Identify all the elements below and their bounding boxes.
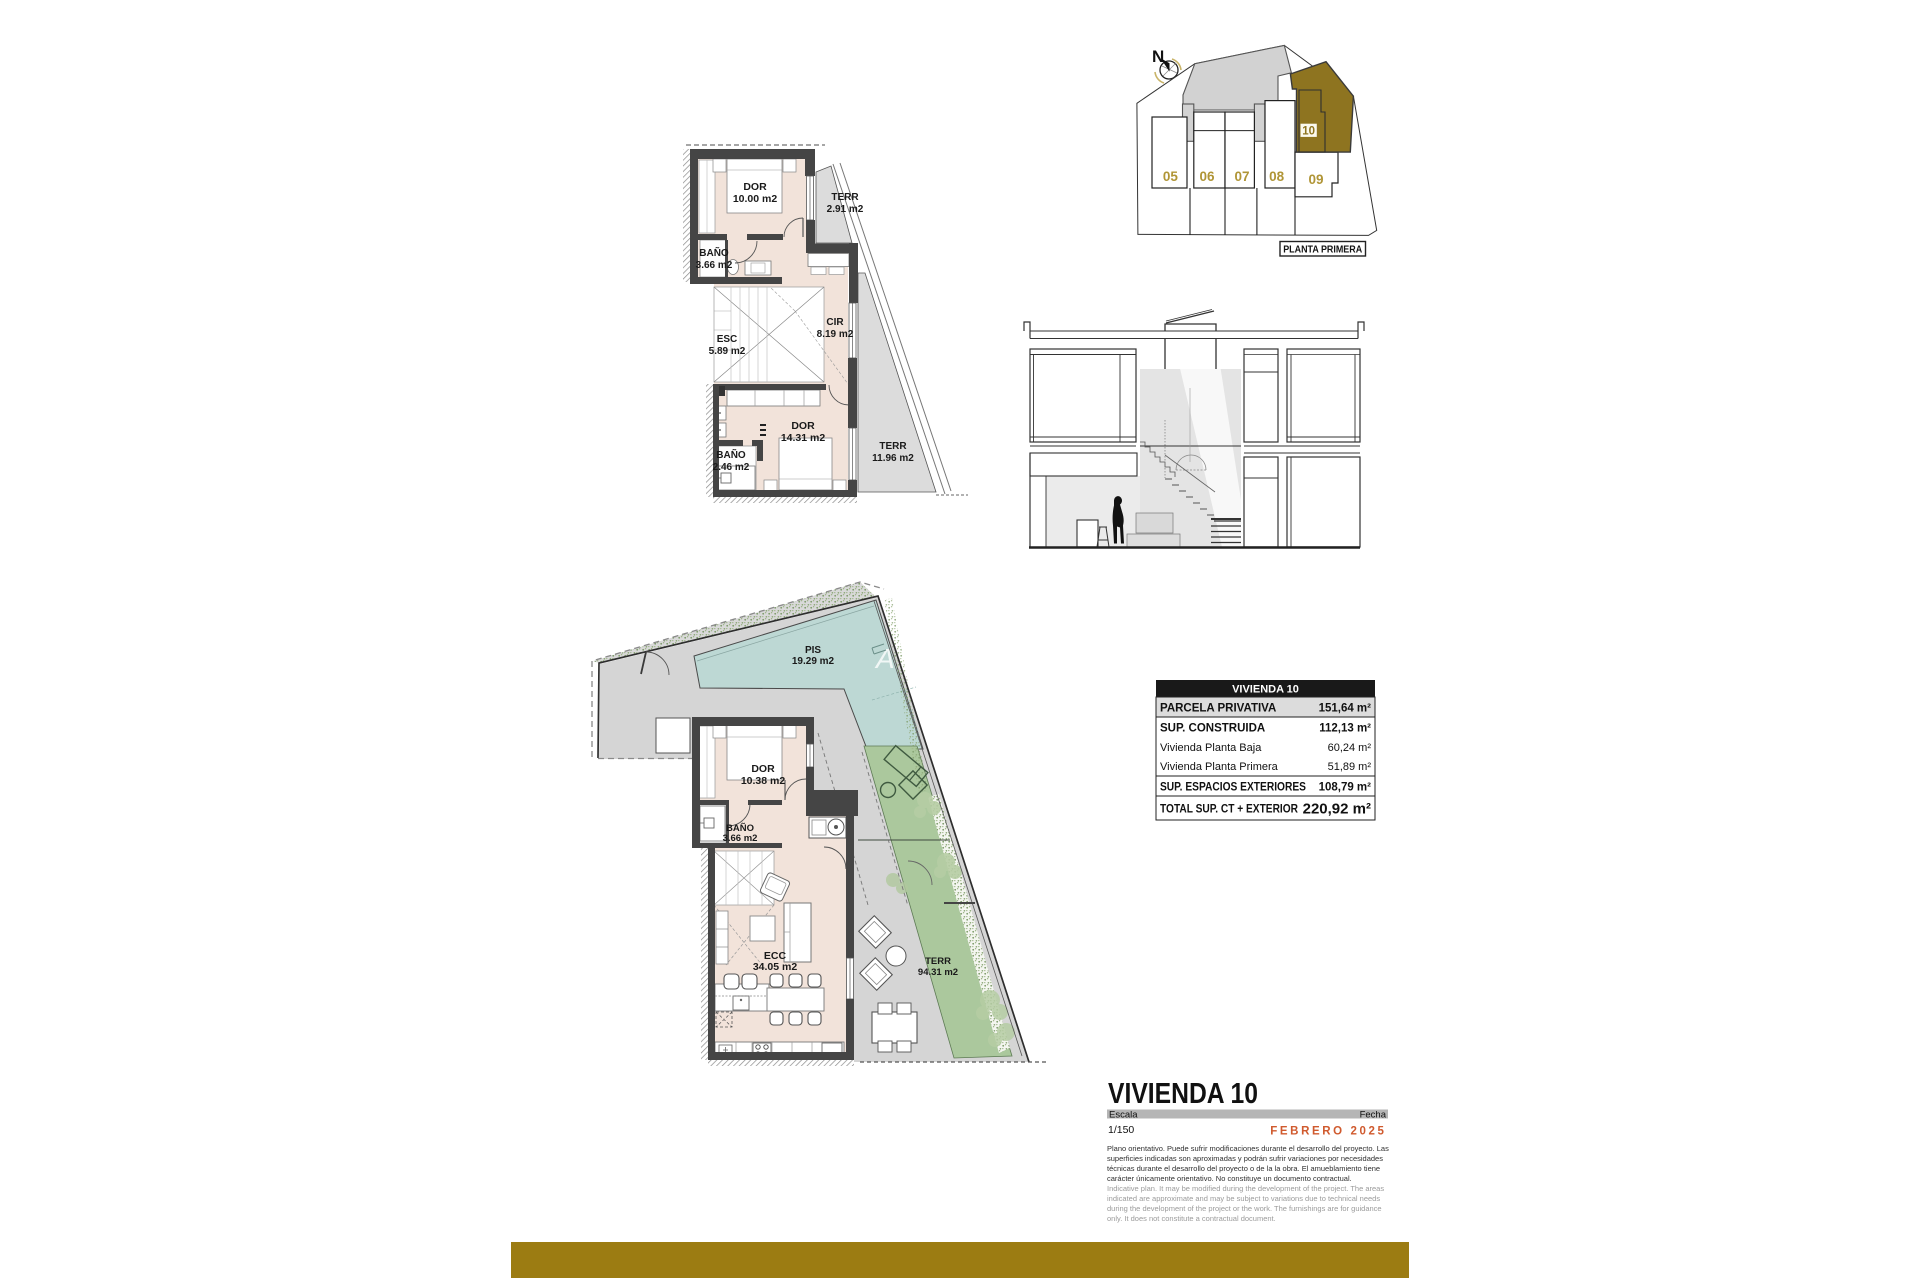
svg-text:1/150: 1/150	[1108, 1124, 1134, 1136]
svg-text:Escala: Escala	[1109, 1110, 1138, 1121]
svg-text:34.05 m2: 34.05 m2	[753, 961, 798, 973]
svg-text:151,64 m²: 151,64 m²	[1319, 703, 1372, 715]
svg-text:TOTAL SUP. CT + EXTERIOR: TOTAL SUP. CT + EXTERIOR	[1160, 802, 1298, 816]
svg-text:220,92 m²: 220,92 m²	[1303, 801, 1371, 818]
svg-text:TERR: TERR	[831, 192, 859, 203]
svg-text:CIR: CIR	[826, 317, 844, 328]
svg-text:FEBRERO 2025: FEBRERO 2025	[1270, 1126, 1386, 1138]
svg-text:PARCELA PRIVATIVA: PARCELA PRIVATIVA	[1160, 703, 1276, 715]
svg-text:07: 07	[1234, 169, 1249, 184]
svg-text:2.46 m2: 2.46 m2	[713, 462, 750, 473]
svg-text:A: A	[874, 643, 895, 674]
svg-text:TERR: TERR	[879, 441, 907, 452]
svg-text:5.89 m2: 5.89 m2	[709, 346, 746, 357]
svg-text:11.96 m2: 11.96 m2	[872, 453, 914, 464]
svg-text:94.31 m2: 94.31 m2	[918, 967, 958, 978]
svg-text:3.66 m2: 3.66 m2	[723, 833, 758, 844]
svg-text:10: 10	[1302, 126, 1315, 138]
svg-text:19.29 m2: 19.29 m2	[792, 656, 835, 667]
svg-text:SUP. CONSTRUIDA: SUP. CONSTRUIDA	[1160, 723, 1265, 735]
svg-text:indicated are approximate and: indicated are approximate and may be sub…	[1107, 1194, 1380, 1203]
svg-text:Vivienda Planta Baja: Vivienda Planta Baja	[1160, 742, 1262, 754]
svg-text:8.19 m2: 8.19 m2	[817, 329, 854, 340]
svg-text:14.31 m2: 14.31 m2	[781, 432, 826, 444]
svg-text:10.38 m2: 10.38 m2	[741, 775, 786, 787]
svg-text:60,24 m²: 60,24 m²	[1328, 742, 1372, 754]
svg-text:Fecha: Fecha	[1360, 1110, 1387, 1121]
svg-text:51,89 m²: 51,89 m²	[1328, 761, 1372, 773]
svg-text:VIVIENDA 10: VIVIENDA 10	[1108, 1078, 1258, 1110]
svg-text:VIVIENDA 10: VIVIENDA 10	[1232, 684, 1299, 696]
svg-text:08: 08	[1269, 169, 1285, 184]
svg-text:108,79 m²: 108,79 m²	[1319, 782, 1372, 794]
svg-text:DOR: DOR	[743, 181, 767, 193]
svg-text:DOR: DOR	[751, 763, 775, 775]
svg-text:112,13 m²: 112,13 m²	[1319, 723, 1371, 735]
svg-text:Plano orientativo. Puede sufri: Plano orientativo. Puede sufrir modifica…	[1107, 1144, 1389, 1153]
svg-text:only. It does not constitute a: only. It does not constitute a contractu…	[1107, 1214, 1276, 1223]
svg-text:SUP. ESPACIOS EXTERIORES: SUP. ESPACIOS EXTERIORES	[1160, 782, 1306, 794]
svg-text:técnicas durante el desarrollo: técnicas durante el desarrollo del proye…	[1107, 1164, 1380, 1173]
svg-text:Vivienda Planta Primera: Vivienda Planta Primera	[1160, 761, 1279, 773]
svg-text:PIS: PIS	[805, 645, 821, 656]
svg-text:BAÑO: BAÑO	[716, 448, 746, 461]
svg-text:05: 05	[1163, 169, 1179, 184]
svg-text:TERR: TERR	[925, 956, 951, 967]
svg-text:06: 06	[1199, 169, 1215, 184]
svg-text:10.00 m2: 10.00 m2	[733, 193, 778, 205]
svg-text:Indicative plan. It may be mod: Indicative plan. It may be modified duri…	[1107, 1184, 1384, 1193]
svg-text:2.91 m2: 2.91 m2	[827, 204, 864, 215]
svg-text:superficies indicadas son apro: superficies indicadas son aproximadas y …	[1107, 1154, 1383, 1163]
svg-text:09: 09	[1308, 172, 1323, 187]
svg-text:BAÑO: BAÑO	[699, 246, 729, 259]
svg-text:3.66 m2: 3.66 m2	[696, 260, 733, 271]
svg-text:during the development of the: during the development of the project or…	[1107, 1204, 1382, 1213]
svg-text:DOR: DOR	[791, 420, 815, 432]
svg-text:ESC: ESC	[717, 334, 738, 345]
svg-text:carácter únicamente orientativ: carácter únicamente orientativo. No cons…	[1107, 1174, 1352, 1183]
svg-text:PLANTA PRIMERA: PLANTA PRIMERA	[1283, 244, 1362, 256]
